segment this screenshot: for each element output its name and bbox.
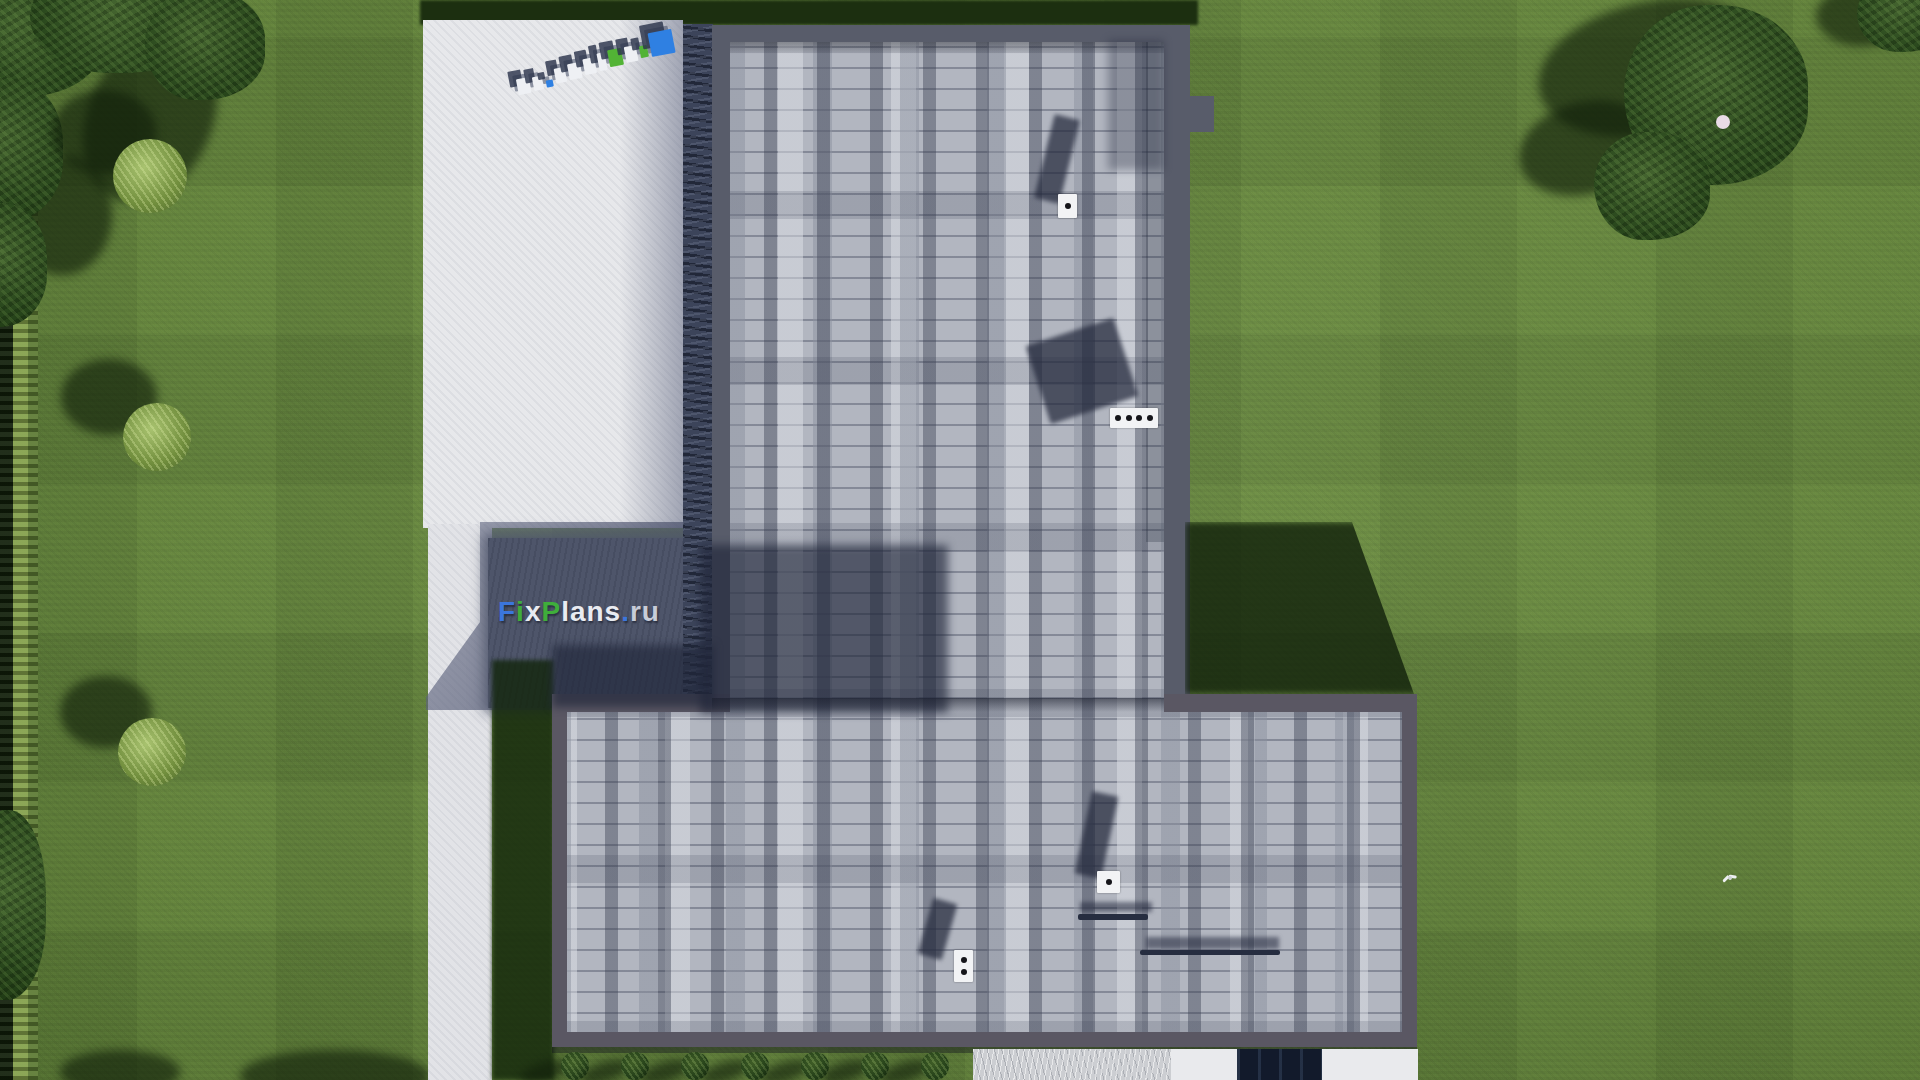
watermark-text: FixPlans.ru — [498, 596, 660, 628]
vent-hole — [1065, 203, 1071, 209]
bar-shadow — [1146, 937, 1279, 949]
logo3d-letter-P — [607, 48, 624, 67]
bird-body — [1727, 875, 1732, 880]
tree-canopy — [145, 0, 265, 100]
roof-fascia-bump — [1188, 96, 1214, 132]
bar-shadow — [1080, 902, 1152, 912]
vent-hole — [1115, 415, 1121, 421]
white-path-left — [1171, 1049, 1237, 1080]
driveway-edge-shadow — [620, 20, 683, 528]
gravel-patio — [973, 1049, 1171, 1080]
watermark-segment: . — [621, 596, 630, 627]
lawn-bush — [123, 403, 191, 471]
eave-shadow-top — [730, 42, 1164, 54]
logo3d-letter-s — [554, 67, 568, 84]
logo3d-letter-r — [532, 75, 544, 91]
lawn-bush — [113, 139, 187, 213]
vent-hole — [1136, 415, 1142, 421]
logo3d-letter-F — [648, 29, 676, 57]
skylight-window — [1237, 1049, 1322, 1080]
logo3d-letter-u — [516, 77, 532, 95]
square-vent — [1097, 871, 1120, 893]
shaded-grass-strip — [492, 660, 554, 1080]
vent-hole — [1147, 415, 1153, 421]
hedge-bush — [921, 1052, 949, 1080]
vent-hole — [961, 957, 967, 963]
watermark-segment: x — [525, 596, 542, 627]
logo3d-letter-a — [582, 57, 597, 75]
roof-shadow-lower-left — [552, 645, 714, 707]
logo3d-letter-l — [596, 52, 607, 71]
white-path-right — [1322, 1049, 1418, 1080]
logo3d-letter-x — [624, 45, 639, 63]
roof-junction-line — [712, 698, 1164, 712]
flower-spot — [1716, 115, 1730, 129]
roof-edge-shade-right — [1146, 42, 1164, 542]
logo3d-letter-dot — [546, 79, 554, 87]
tree-canopy — [1594, 132, 1710, 240]
watermark-segment: i — [516, 596, 525, 627]
watermark-segment: F — [498, 596, 516, 627]
snow-guard-bar — [1140, 950, 1280, 955]
logo3d-letter-i — [639, 45, 649, 58]
aerial-render: FixPlans.ru — [0, 0, 1920, 1080]
vent-hole — [1106, 879, 1112, 885]
vent-hole — [1126, 415, 1132, 421]
watermark-segment: ru — [630, 596, 660, 627]
watermark-segment: P — [541, 596, 561, 627]
square-vent — [1058, 194, 1077, 218]
vent-hole — [961, 969, 967, 975]
watermark-segment: lans — [561, 596, 621, 627]
logo3d-letter-n — [567, 62, 583, 80]
lawn-bush — [118, 718, 186, 786]
snow-guard-bar — [1078, 914, 1148, 920]
slot-vent — [1110, 408, 1158, 428]
roof-shadow-southwest — [700, 545, 948, 713]
double-vent — [954, 950, 973, 982]
